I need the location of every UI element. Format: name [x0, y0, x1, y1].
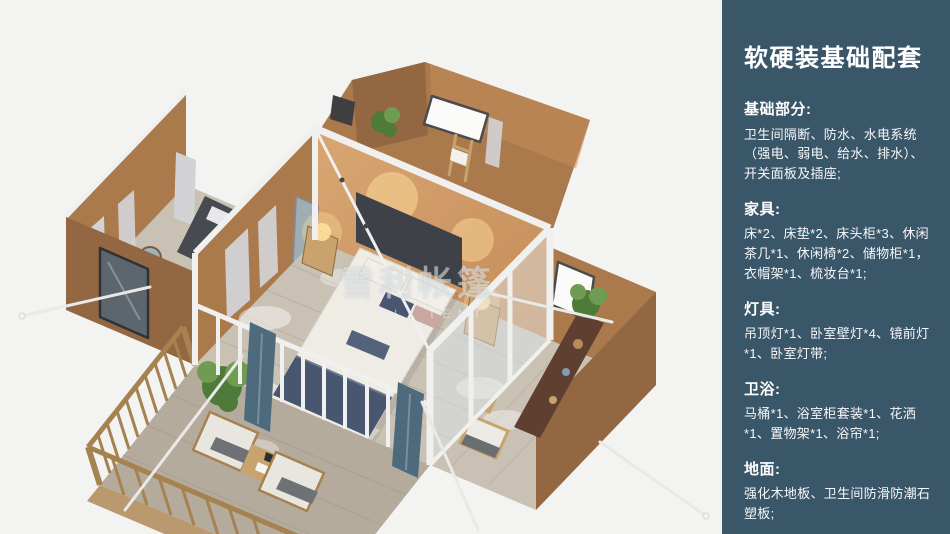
pole-knob [19, 313, 25, 319]
section-heading: 基础部分: [744, 100, 934, 120]
sidebar-title: 软硬装基础配套 [744, 44, 934, 74]
section-bathroom: 卫浴: 马桶*1、浴室柜套装*1、花洒*1、置物架*1、浴帘*1; [744, 380, 934, 444]
pole-knob [703, 513, 709, 519]
awning-pole [600, 442, 706, 516]
section-body: 强化木地板、卫生间防滑防潮石塑板; [744, 484, 934, 524]
section-body: 床*2、床垫*2、床头柜*3、休闲茶几*1、休闲椅*2、储物柜*1，衣帽架*1、… [744, 224, 934, 283]
section-lighting: 灯具: 吊顶灯*1、卧室壁灯*4、镜前灯*1、卧室灯带; [744, 300, 934, 364]
section-heading: 卫浴: [744, 380, 934, 400]
isometric-floorplan [0, 0, 722, 534]
app-window: 雪利帐篷 XUELI TENT 软硬装基础配套 基础部分: 卫生间隔断、防水、水… [0, 0, 950, 534]
section-body: 马桶*1、浴室柜套装*1、花洒*1、置物架*1、浴帘*1; [744, 404, 934, 444]
floorplan-render: 雪利帐篷 XUELI TENT [0, 0, 722, 534]
section-heading: 家具: [744, 200, 934, 220]
section-heading: 地面: [744, 460, 934, 480]
track-hook [364, 224, 369, 229]
section-flooring: 地面: 强化木地板、卫生间防滑防潮石塑板; [744, 460, 934, 524]
section-furniture: 家具: 床*2、床垫*2、床头柜*3、休闲茶几*1、休闲椅*2、储物柜*1，衣帽… [744, 200, 934, 284]
track-hook [340, 178, 345, 183]
left-curtain-3 [174, 152, 196, 226]
section-foundation: 基础部分: 卫生间隔断、防水、水电系统（强电、弱电、给水、排水）、开关面板及插座… [744, 100, 934, 184]
section-heading: 灯具: [744, 300, 934, 320]
section-body: 卫生间隔断、防水、水电系统（强电、弱电、给水、排水）、开关面板及插座; [744, 125, 934, 184]
info-sidebar: 软硬装基础配套 基础部分: 卫生间隔断、防水、水电系统（强电、弱电、给水、排水）… [722, 0, 950, 534]
section-body: 吊顶灯*1、卧室壁灯*4、镜前灯*1、卧室灯带; [744, 324, 934, 364]
